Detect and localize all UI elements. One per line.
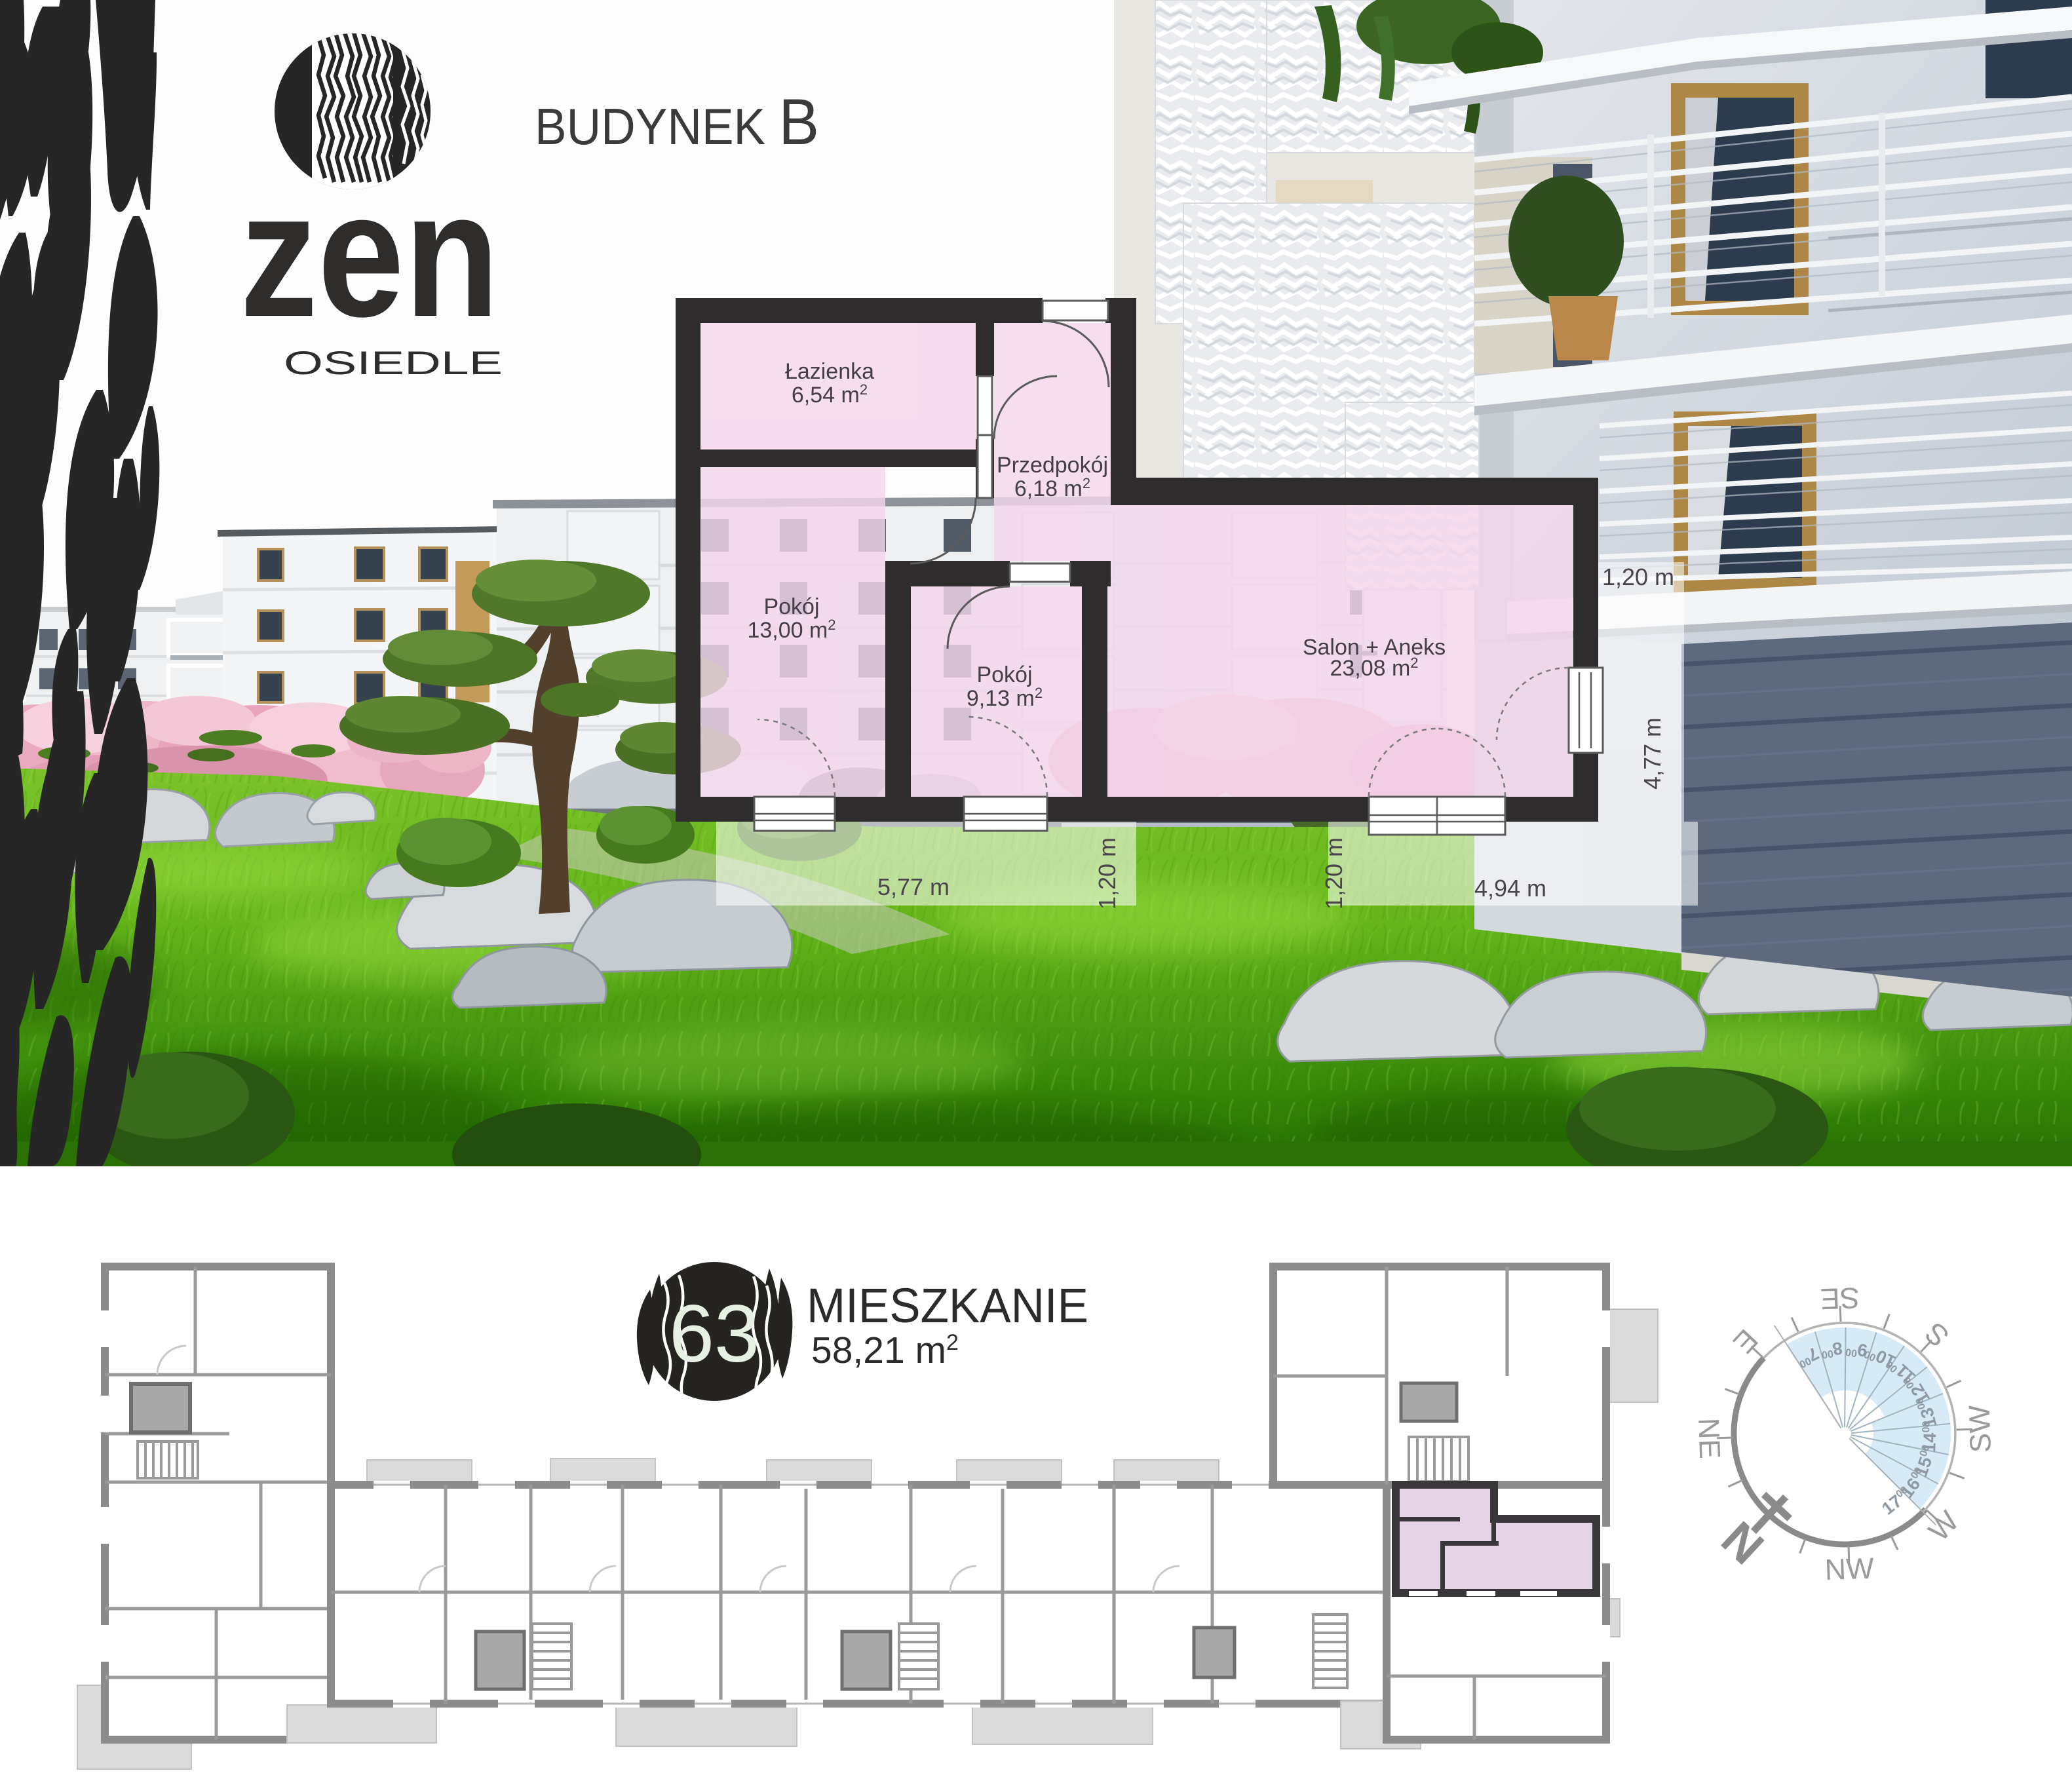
svg-text:NW: NW [1824, 1551, 1875, 1586]
svg-text:5,77 m: 5,77 m [877, 873, 950, 900]
svg-text:1,20 m: 1,20 m [1094, 837, 1121, 909]
svg-text:NE: NE [1692, 1417, 1727, 1459]
svg-text:23,08 m2: 23,08 m2 [1330, 655, 1418, 681]
svg-text:6,18 m2: 6,18 m2 [1014, 475, 1090, 501]
svg-text:Łazienka: Łazienka [785, 359, 874, 384]
svg-text:4,77 m: 4,77 m [1639, 717, 1666, 790]
svg-text:1,20 m: 1,20 m [1602, 564, 1674, 590]
svg-text:Pokój: Pokój [976, 662, 1032, 687]
svg-text:zen: zen [240, 155, 499, 354]
svg-text:6,54 m2: 6,54 m2 [792, 381, 868, 408]
svg-text:Przedpokój: Przedpokój [997, 453, 1108, 478]
svg-text:OSIEDLE: OSIEDLE [284, 345, 503, 381]
svg-text:SW: SW [1963, 1404, 1998, 1453]
svg-text:SE: SE [1820, 1281, 1860, 1316]
svg-text:MIESZKANIE: MIESZKANIE [807, 1278, 1088, 1333]
svg-text:Pokój: Pokój [763, 594, 819, 619]
svg-text:13,00 m2: 13,00 m2 [747, 617, 835, 643]
svg-text:58,21 m2: 58,21 m2 [811, 1329, 959, 1371]
svg-text:9,13 m2: 9,13 m2 [967, 685, 1043, 711]
svg-text:1,20 m: 1,20 m [1320, 837, 1347, 909]
svg-text:63: 63 [669, 1289, 759, 1379]
svg-text:4,94 m: 4,94 m [1474, 875, 1546, 902]
